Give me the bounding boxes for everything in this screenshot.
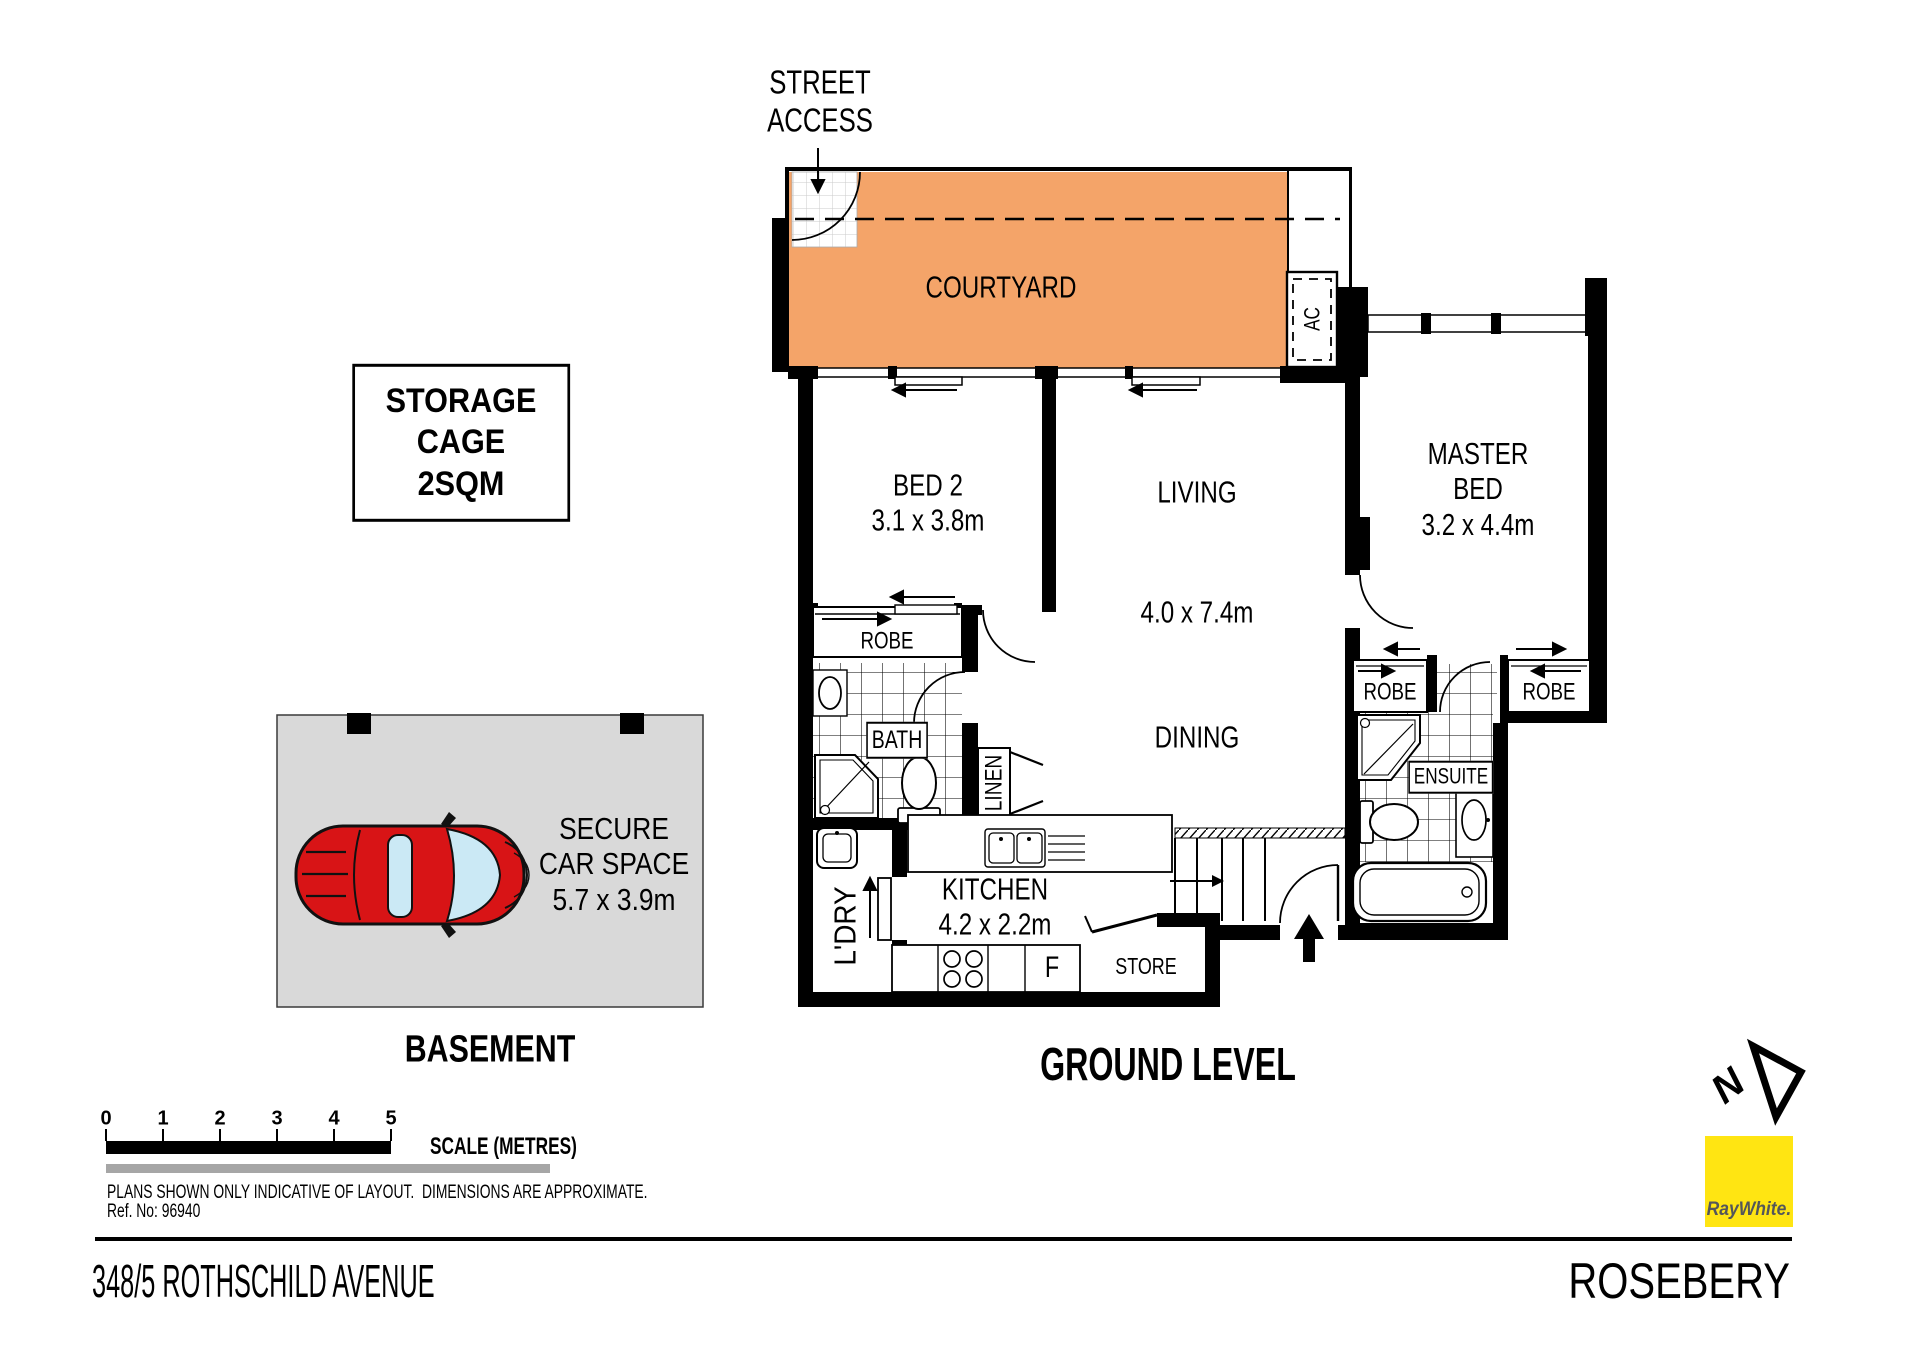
stairs: [1170, 828, 1345, 921]
raywhite-logo-text: RayWhite.: [1707, 1199, 1792, 1221]
bath-label: BATH: [866, 722, 927, 759]
robe-left-label: ROBE: [1363, 678, 1416, 705]
linen-label: LINEN: [980, 755, 1007, 812]
store-door: [1085, 915, 1157, 932]
fridge-label: F: [1045, 951, 1059, 985]
robe-right-label: ROBE: [1522, 678, 1575, 705]
ensuite-label: ENSUITE: [1408, 761, 1493, 794]
ref-no-text: Ref. No: 96940: [107, 1201, 200, 1223]
bath-basin: [813, 670, 847, 716]
ac-label: AC: [1299, 307, 1324, 331]
street-access-label: STREET ACCESS: [767, 63, 873, 138]
bed2-door-arc: [983, 610, 1035, 662]
living-label: LIVING: [1157, 474, 1236, 509]
footer-rule: [95, 1237, 1792, 1241]
kitchen-bench: [908, 815, 1172, 872]
master-bed-label: MASTER BED 3.2 x 4.4m: [1422, 436, 1535, 542]
north-arrow-icon: N: [1703, 1046, 1801, 1117]
kitchen-label: KITCHEN 4.2 x 2.2m: [939, 872, 1052, 943]
suburb-title: ROSEBERY: [1568, 1252, 1790, 1310]
scale-tick-5: 5: [385, 1108, 396, 1131]
raywhite-logo: RayWhite.: [1705, 1136, 1793, 1227]
entry-arrow: [1294, 914, 1324, 962]
scale-tick-1: 1: [157, 1108, 168, 1131]
scale-label: SCALE (METRES): [430, 1133, 577, 1161]
floor-plan-page: N STREET ACCESS COURTYARD AC BED 2 3.1 x…: [0, 0, 1920, 1357]
car-space-label: SECURE CAR SPACE 5.7 x 3.9m: [539, 811, 689, 917]
dining-label: DINING: [1155, 719, 1240, 754]
ground-level-title: GROUND LEVEL: [1040, 1038, 1296, 1090]
courtyard-label: COURTYARD: [926, 269, 1077, 304]
laundry-label: L'DRY: [827, 886, 862, 965]
bed2-label: BED 2 3.1 x 3.8m: [872, 468, 985, 539]
scale-tick-2: 2: [214, 1108, 225, 1131]
bath-tub: [1353, 863, 1486, 921]
floor-plan-graphics: N: [0, 0, 1920, 1357]
car-illustration: [296, 812, 529, 938]
courtyard-area: [788, 167, 1340, 368]
robe-bed2-label: ROBE: [860, 627, 913, 654]
living-dims-label: 4.0 x 7.4m: [1141, 594, 1254, 629]
storage-cage-label: STORAGE CAGE 2SQM: [352, 364, 569, 522]
laundry-door-panel: [878, 878, 891, 940]
ensuite-toilet: [1360, 801, 1418, 843]
address-title: 348/5 ROTHSCHILD AVENUE: [92, 1254, 435, 1308]
svg-text:N: N: [1703, 1059, 1754, 1112]
laundry-sink: [817, 828, 857, 868]
ensuite-basin: [1456, 789, 1493, 857]
basement-title: BASEMENT: [405, 1028, 576, 1071]
store-label: STORE: [1115, 953, 1176, 979]
scale-tick-3: 3: [271, 1108, 282, 1131]
scale-tick-4: 4: [328, 1108, 339, 1131]
master-door-arc: [1360, 575, 1413, 628]
scale-tick-0: 0: [100, 1108, 111, 1131]
